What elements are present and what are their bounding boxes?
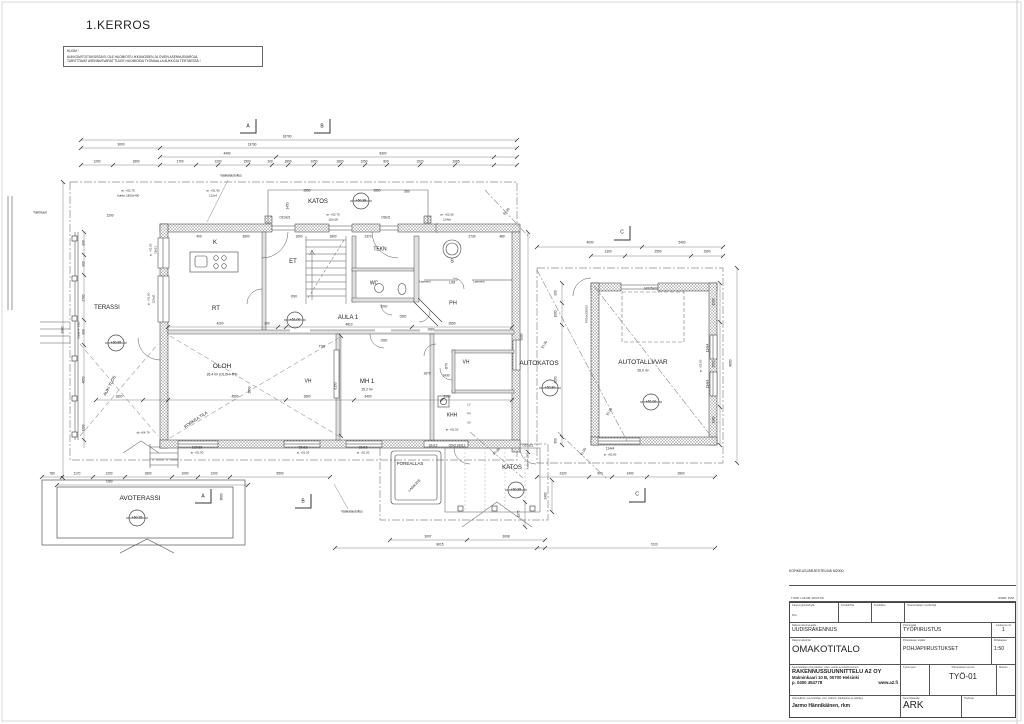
garage-details: [622, 292, 684, 342]
toimenpide-value: UUDISRAKENNUS: [792, 627, 837, 633]
tontti-label: Tontti/Rno: [874, 604, 902, 607]
piirustuslaji-value: TYÖPIIRUSTUS: [903, 627, 941, 633]
kortteli-label: Kortteli/Tila: [841, 604, 869, 607]
hot-tub: [391, 451, 441, 504]
deck-posts: [458, 506, 535, 511]
tunnus-value: TYÖ-01: [932, 672, 994, 681]
drawing-sheet: 1.KERROS HUOM ! AUKKOMITOITUKSISSA EI OL…: [0, 0, 1024, 724]
windows: [158, 238, 717, 447]
company-website: www.a2.fi: [878, 680, 898, 685]
tiedosto-label: Tiedosto: [964, 697, 1013, 700]
interior-wall-details: [290, 280, 512, 398]
kaupunginosa-label: Kaupunginosa/Kylä: [792, 604, 836, 607]
dimension-ticks: [40, 138, 739, 550]
juokseva-value: 1: [1002, 627, 1005, 633]
note-line: TARVITTAVAT ASENNUSVARAT TULEE HUOMIOIDA…: [67, 59, 259, 64]
revision-row: TUNN. LUKUM. MUUTOS NIMIM. PVM: [789, 585, 1016, 602]
kohde-label: Rakennuskohde: [792, 639, 898, 642]
sink: [375, 284, 384, 293]
open-above-diagonals: [80, 336, 342, 438]
rno-label: Rno: [792, 614, 836, 617]
toilet: [398, 284, 406, 295]
tyonumero-label: Työnumero: [903, 666, 927, 669]
mittakaava-label: Mittakaava: [994, 639, 1013, 642]
sisalto-label: Piirustuksen sisältö: [903, 639, 989, 642]
note-title: HUOM !: [67, 49, 259, 54]
kitchen-island: [190, 252, 238, 272]
vastuullinen-label: Vastuullinen suunnittelija: nimi, tutkin…: [792, 697, 898, 700]
washer: [438, 396, 449, 407]
terrace-linework: [8, 196, 178, 468]
terrace-posts: [72, 236, 77, 437]
company-phone: p. 0400 454778: [792, 680, 822, 685]
fixtures: [190, 240, 461, 504]
note-box: HUOM ! AUKKOMITOITUKSISSA EI OLE HUOMIOI…: [63, 46, 263, 67]
designer-name: Jarmo Hännikäinen, rkm: [792, 703, 898, 709]
canopy-top: [268, 190, 428, 224]
tunnus-label: Piirustuksen tunnus: [932, 666, 994, 669]
muutos-label: Muutos: [999, 666, 1013, 669]
level-mark-circles: [105, 193, 662, 526]
plan-title: 1.KERROS: [86, 18, 151, 32]
sisalto-value: POHJAPIIRUSTUKSET: [903, 646, 989, 652]
revision-headers-right: NIMIM. PVM: [998, 596, 1014, 600]
stairs: [306, 236, 346, 304]
deck-bottom: [123, 441, 540, 527]
viranomaiset-label: Viranomaisten merkintöjä: [907, 604, 1013, 607]
kohde-value: OMAKOTITALO: [792, 644, 898, 655]
height-system-label: KORKEUSJÄRJESTELMÄ N2000: [789, 569, 844, 573]
ala-value: ARK: [903, 700, 959, 711]
title-block: TUNN. LUKUM. MUUTOS NIMIM. PVM Kaupungin…: [789, 585, 1016, 718]
revision-headers-left: TUNN. LUKUM. MUUTOS: [791, 596, 824, 600]
mittakaava-value: 1:50: [994, 646, 1013, 652]
